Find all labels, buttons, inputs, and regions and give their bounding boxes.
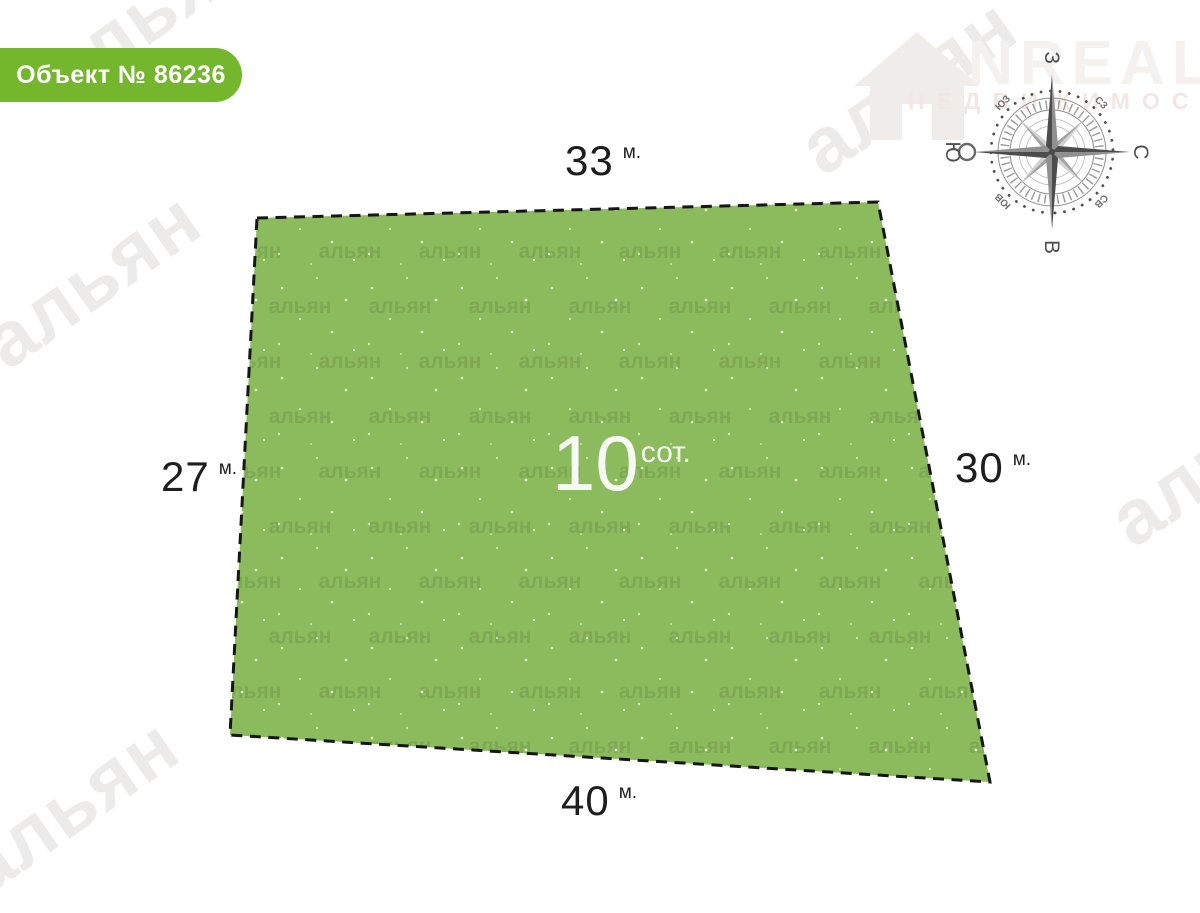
compass-label-w: З (1040, 51, 1063, 64)
dimension-left: 27 м. (161, 456, 237, 498)
dimension-unit: м. (1013, 450, 1031, 469)
compass-label-e: В (1040, 240, 1063, 254)
dimension-top: 33 м. (565, 140, 641, 182)
compass-label-s: Ю (942, 141, 964, 162)
dimension-value: 40 (561, 780, 610, 822)
dimension-value: 27 (161, 456, 210, 498)
plot-area-label: 10 сот. (552, 424, 691, 502)
dimension-unit: м. (623, 143, 641, 162)
compass-label-n: С (1129, 144, 1152, 159)
object-number-label: Объект № 86236 (16, 61, 226, 90)
dimension-value: 33 (565, 140, 614, 182)
plot-area-unit: сот. (641, 438, 691, 468)
object-number-badge: Объект № 86236 (0, 48, 242, 102)
dimension-right: 30 м. (955, 447, 1031, 489)
compass-label-sw: ЮЗ (993, 93, 1013, 113)
compass-label-nw: СЗ (1092, 95, 1109, 112)
dimension-value: 30 (955, 447, 1004, 489)
compass-label-ne: СВ (1092, 192, 1110, 210)
dimension-bottom: 40 м. (561, 780, 637, 822)
land-plot-scheme: альян альян альян альян альян NREALT НЕД… (0, 0, 1200, 850)
compass-label-se: ЮВ (993, 191, 1013, 211)
compass-needles (974, 74, 1130, 230)
plot-area-value: 10 (552, 424, 639, 502)
compass-rose: С В Ю З СВ ЮВ ЮЗ СЗ (942, 42, 1162, 262)
dimension-unit: м. (619, 783, 637, 802)
dimension-unit: м. (219, 459, 237, 478)
